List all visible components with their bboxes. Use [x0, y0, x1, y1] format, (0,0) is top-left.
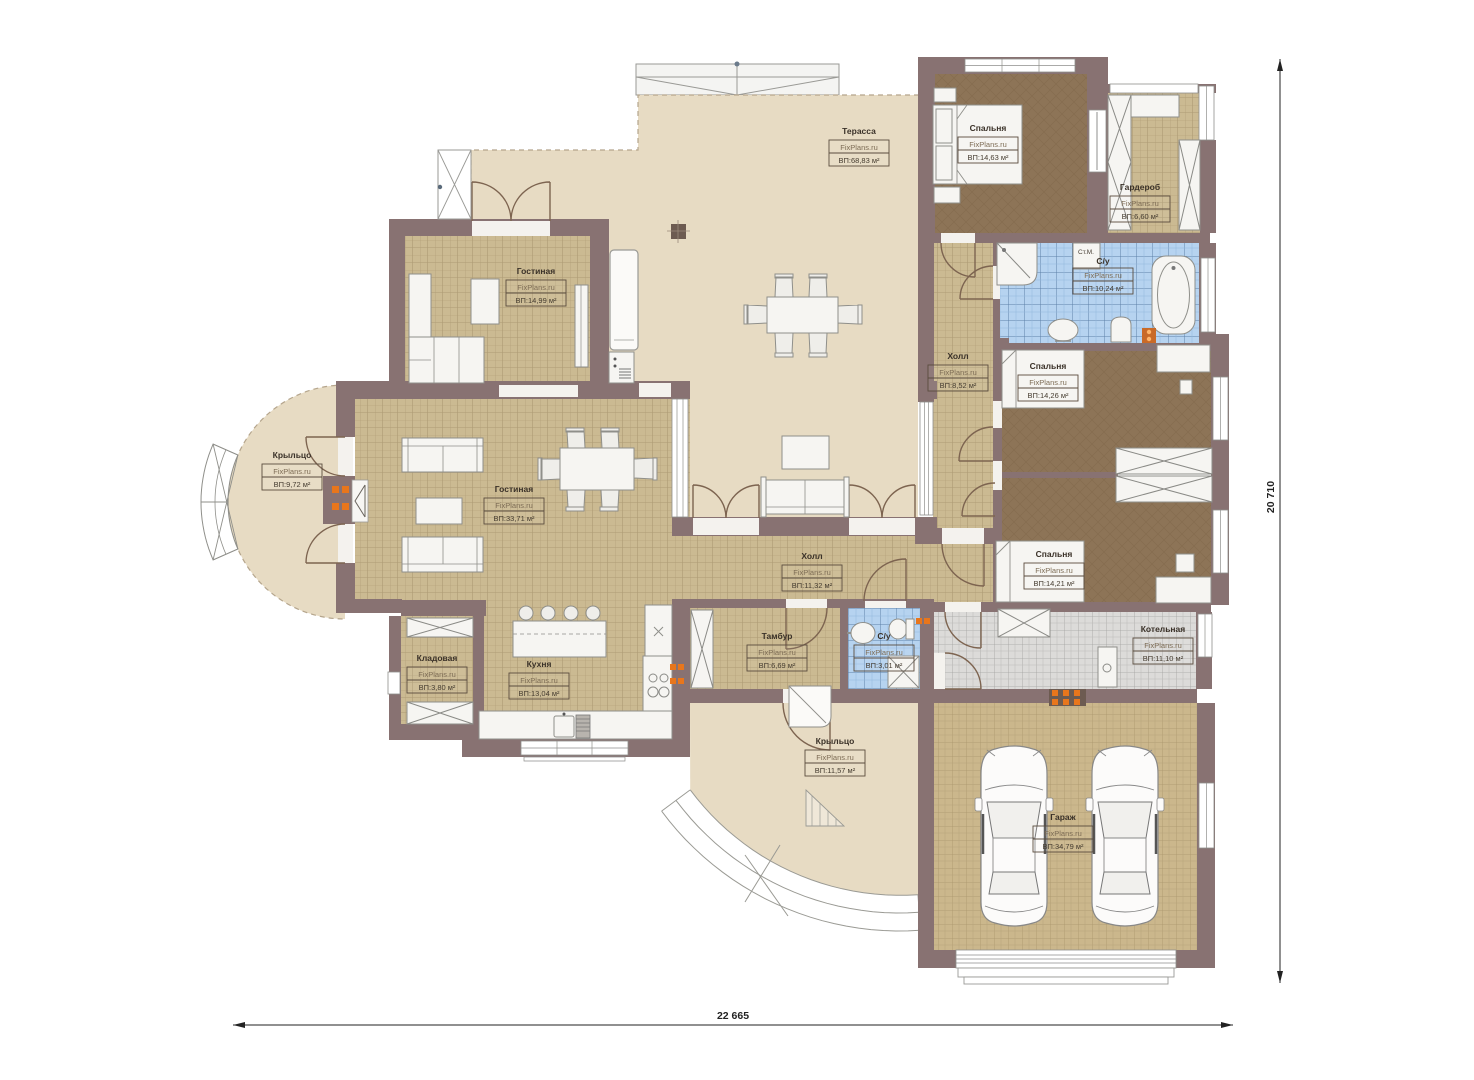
svg-text:FixPlans.ru: FixPlans.ru [495, 501, 533, 510]
svg-text:С/у: С/у [1096, 256, 1110, 266]
svg-text:Крыльцо: Крыльцо [816, 736, 855, 746]
svg-text:FixPlans.ru: FixPlans.ru [517, 283, 555, 292]
svg-text:Терасса: Терасса [842, 126, 876, 136]
svg-text:ВП:14,21 м²: ВП:14,21 м² [1034, 579, 1075, 588]
svg-text:FixPlans.ru: FixPlans.ru [273, 467, 311, 476]
svg-text:Гостиная: Гостиная [495, 484, 533, 494]
svg-text:Спальня: Спальня [1036, 549, 1073, 559]
svg-text:ВП:14,63 м²: ВП:14,63 м² [968, 153, 1009, 162]
svg-text:ВП:6,60 м²: ВП:6,60 м² [1122, 212, 1159, 221]
svg-text:FixPlans.ru: FixPlans.ru [1084, 271, 1122, 280]
svg-text:Спальня: Спальня [1030, 361, 1067, 371]
svg-text:ВП:11,32 м²: ВП:11,32 м² [792, 581, 833, 590]
svg-text:FixPlans.ru: FixPlans.ru [939, 368, 977, 377]
svg-text:22 665: 22 665 [717, 1010, 749, 1022]
svg-text:Холл: Холл [801, 551, 822, 561]
svg-text:ВП:14,99 м²: ВП:14,99 м² [516, 296, 557, 305]
svg-text:Гараж: Гараж [1050, 812, 1076, 822]
svg-text:FixPlans.ru: FixPlans.ru [816, 753, 854, 762]
svg-text:Тамбур: Тамбур [762, 631, 793, 641]
svg-text:ВП:11,10 м²: ВП:11,10 м² [1143, 654, 1184, 663]
svg-text:FixPlans.ru: FixPlans.ru [793, 568, 831, 577]
svg-text:FixPlans.ru: FixPlans.ru [1144, 641, 1182, 650]
svg-text:FixPlans.ru: FixPlans.ru [840, 143, 878, 152]
svg-text:FixPlans.ru: FixPlans.ru [1035, 566, 1073, 575]
svg-text:ВП:34,79 м²: ВП:34,79 м² [1043, 842, 1084, 851]
svg-text:ВП:68,83 м²: ВП:68,83 м² [839, 156, 880, 165]
svg-text:Кладовая: Кладовая [417, 653, 458, 663]
svg-text:С/у: С/у [877, 631, 891, 641]
svg-text:20 710: 20 710 [1265, 481, 1277, 513]
svg-text:FixPlans.ru: FixPlans.ru [865, 648, 903, 657]
svg-text:Ст.М.: Ст.М. [1078, 249, 1094, 256]
svg-text:FixPlans.ru: FixPlans.ru [520, 676, 558, 685]
svg-text:Кухня: Кухня [527, 659, 552, 669]
svg-text:Гардероб: Гардероб [1120, 182, 1160, 192]
svg-text:FixPlans.ru: FixPlans.ru [969, 140, 1007, 149]
svg-text:ВП:3,80 м²: ВП:3,80 м² [419, 683, 456, 692]
svg-text:ВП:33,71 м²: ВП:33,71 м² [494, 514, 535, 523]
svg-text:Крыльцо: Крыльцо [273, 450, 312, 460]
svg-text:ВП:8,52 м²: ВП:8,52 м² [940, 381, 977, 390]
svg-text:ВП:14,26 м²: ВП:14,26 м² [1028, 391, 1069, 400]
svg-text:ВП:3,01 м²: ВП:3,01 м² [866, 661, 903, 670]
svg-text:FixPlans.ru: FixPlans.ru [1029, 378, 1067, 387]
svg-text:ВП:6,69 м²: ВП:6,69 м² [759, 661, 796, 670]
svg-text:ВП:13,04 м²: ВП:13,04 м² [519, 689, 560, 698]
svg-text:Гостиная: Гостиная [517, 266, 555, 276]
svg-text:ВП:9,72 м²: ВП:9,72 м² [274, 480, 311, 489]
svg-text:FixPlans.ru: FixPlans.ru [1121, 199, 1159, 208]
svg-text:ВП:11,57 м²: ВП:11,57 м² [815, 766, 856, 775]
svg-text:FixPlans.ru: FixPlans.ru [758, 648, 796, 657]
svg-text:ВП:10,24 м²: ВП:10,24 м² [1083, 284, 1124, 293]
svg-text:Холл: Холл [947, 351, 968, 361]
svg-text:FixPlans.ru: FixPlans.ru [418, 670, 456, 679]
svg-text:Спальня: Спальня [970, 123, 1007, 133]
svg-text:Котельная: Котельная [1141, 624, 1186, 634]
svg-text:FixPlans.ru: FixPlans.ru [1044, 829, 1082, 838]
